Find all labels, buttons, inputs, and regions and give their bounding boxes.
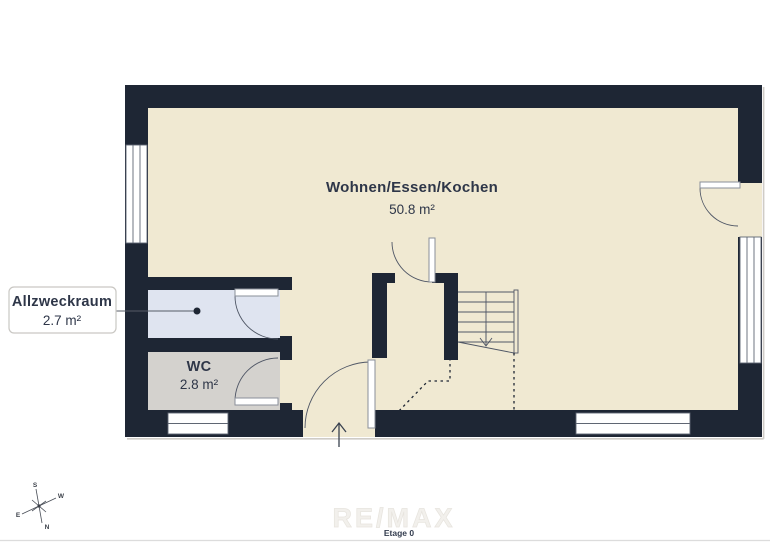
wall-top (125, 85, 762, 108)
wall-smallrooms-right-low (280, 403, 292, 410)
main-room-name: Wohnen/Essen/Kochen (326, 179, 498, 196)
callout-anchor-dot (194, 308, 201, 315)
window-right (740, 237, 761, 363)
wall-enclosure-top-left (372, 273, 395, 283)
wc-area: 2.8 m² (180, 377, 219, 392)
window-left (126, 145, 147, 243)
allzweckraum-floor (148, 290, 280, 338)
wall-smallrooms-right-mid (280, 336, 292, 360)
small-rooms (148, 277, 292, 410)
wall-enclosure-left (372, 275, 387, 358)
floorplan-canvas: Wohnen/Essen/Kochen 50.8 m² WC 2.8 m² Al… (0, 0, 770, 545)
compass-west: W (58, 493, 65, 500)
floor-tab-etage-0[interactable]: Etage 0 (384, 528, 415, 538)
right-door-opening (738, 183, 762, 237)
wall-smallrooms-top (148, 277, 292, 290)
allzweckraum-name: Allzweckraum (12, 294, 112, 310)
wall-smallrooms-mid (148, 338, 292, 352)
allzweckraum-area: 2.7 m² (43, 313, 82, 328)
window-bottom-wc (168, 413, 228, 434)
wall-left (125, 85, 148, 410)
compass-east: E (16, 512, 21, 519)
wc-name: WC (187, 359, 212, 375)
compass-rose-icon: S W E N (16, 482, 65, 531)
main-room-area: 50.8 m² (389, 202, 435, 217)
wall-enclosure-right (444, 273, 458, 360)
compass-north: N (45, 524, 50, 531)
compass-south: S (33, 482, 38, 489)
floorplan-viewer: Wohnen/Essen/Kochen 50.8 m² WC 2.8 m² Al… (0, 0, 770, 545)
window-bottom-right (576, 413, 690, 434)
